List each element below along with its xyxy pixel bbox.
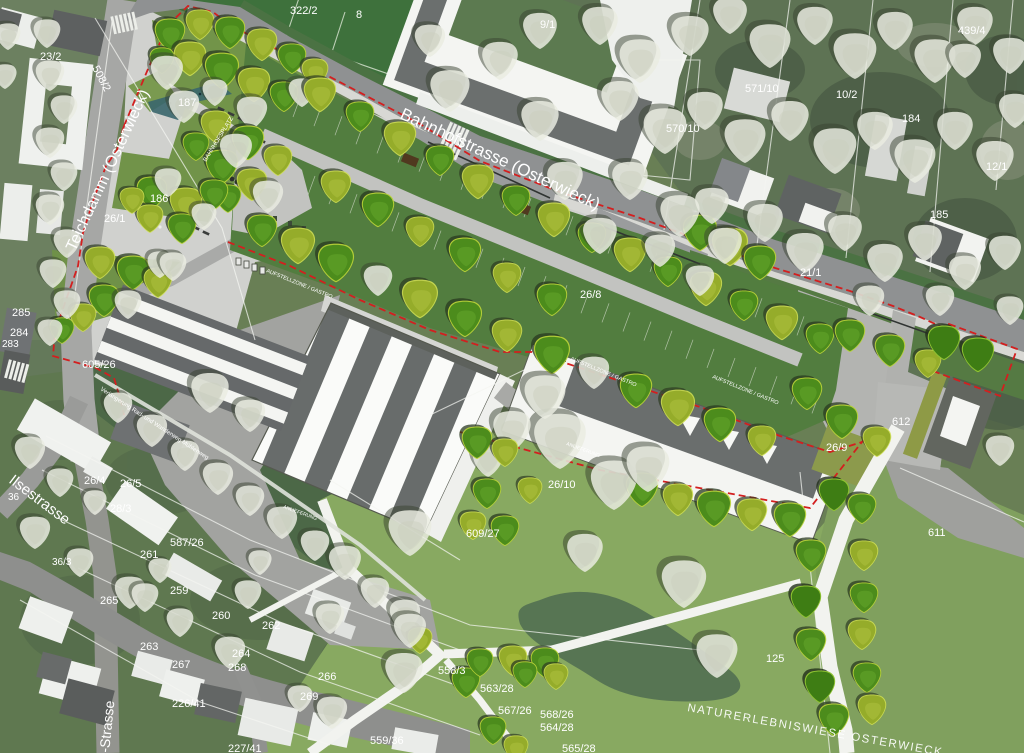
svg-text:570/10: 570/10 [666, 123, 700, 135]
svg-text:439/4: 439/4 [958, 25, 986, 37]
svg-text:185: 185 [930, 209, 948, 221]
svg-text:184: 184 [902, 113, 920, 125]
svg-text:558/3: 558/3 [438, 665, 466, 677]
svg-text:268: 268 [228, 662, 246, 674]
svg-text:564/28: 564/28 [540, 722, 574, 734]
svg-text:567/26: 567/26 [498, 705, 532, 717]
svg-text:283: 283 [2, 339, 19, 350]
svg-text:261: 261 [140, 549, 158, 561]
svg-text:322/2: 322/2 [290, 5, 318, 17]
svg-text:9/1: 9/1 [540, 19, 555, 31]
svg-text:36: 36 [8, 492, 20, 503]
svg-text:260: 260 [212, 610, 230, 622]
svg-text:26/1: 26/1 [104, 213, 125, 225]
svg-text:186: 186 [150, 193, 168, 205]
svg-text:187: 187 [178, 97, 196, 109]
svg-text:611: 611 [928, 527, 946, 539]
svg-text:264: 264 [232, 648, 250, 660]
svg-text:26/10: 26/10 [548, 479, 576, 491]
svg-text:563/28: 563/28 [480, 683, 514, 695]
svg-text:265: 265 [100, 595, 118, 607]
svg-text:263: 263 [140, 641, 158, 653]
svg-text:23/2: 23/2 [40, 51, 61, 63]
svg-text:565/28: 565/28 [562, 743, 596, 753]
svg-text:269: 269 [300, 691, 318, 703]
svg-text:559/36: 559/36 [370, 735, 404, 747]
svg-text:26/4: 26/4 [84, 475, 105, 487]
svg-text:612: 612 [892, 416, 910, 428]
svg-text:267: 267 [172, 659, 190, 671]
svg-text:266: 266 [318, 671, 336, 683]
svg-text:125: 125 [766, 653, 784, 665]
svg-text:10/2: 10/2 [836, 89, 857, 101]
svg-text:605/26: 605/26 [82, 359, 116, 371]
svg-text:587/26: 587/26 [170, 537, 204, 549]
svg-text:12/1: 12/1 [986, 161, 1007, 173]
svg-text:226/41: 226/41 [172, 698, 206, 710]
svg-text:227/41: 227/41 [228, 743, 262, 753]
svg-text:8: 8 [356, 9, 362, 21]
svg-text:26/8: 26/8 [580, 289, 601, 301]
svg-text:571/10: 571/10 [745, 83, 779, 95]
svg-text:259: 259 [170, 585, 188, 597]
svg-text:28/3: 28/3 [110, 503, 131, 515]
svg-text:26/9: 26/9 [826, 442, 847, 454]
svg-text:568/26: 568/26 [540, 709, 574, 721]
svg-text:36/3: 36/3 [52, 557, 72, 568]
svg-text:262: 262 [262, 620, 280, 632]
svg-text:26/5: 26/5 [120, 478, 141, 490]
svg-text:284: 284 [10, 327, 28, 339]
svg-text:609/27: 609/27 [466, 528, 500, 540]
svg-text:285: 285 [12, 307, 30, 319]
svg-text:21/1: 21/1 [800, 267, 821, 279]
